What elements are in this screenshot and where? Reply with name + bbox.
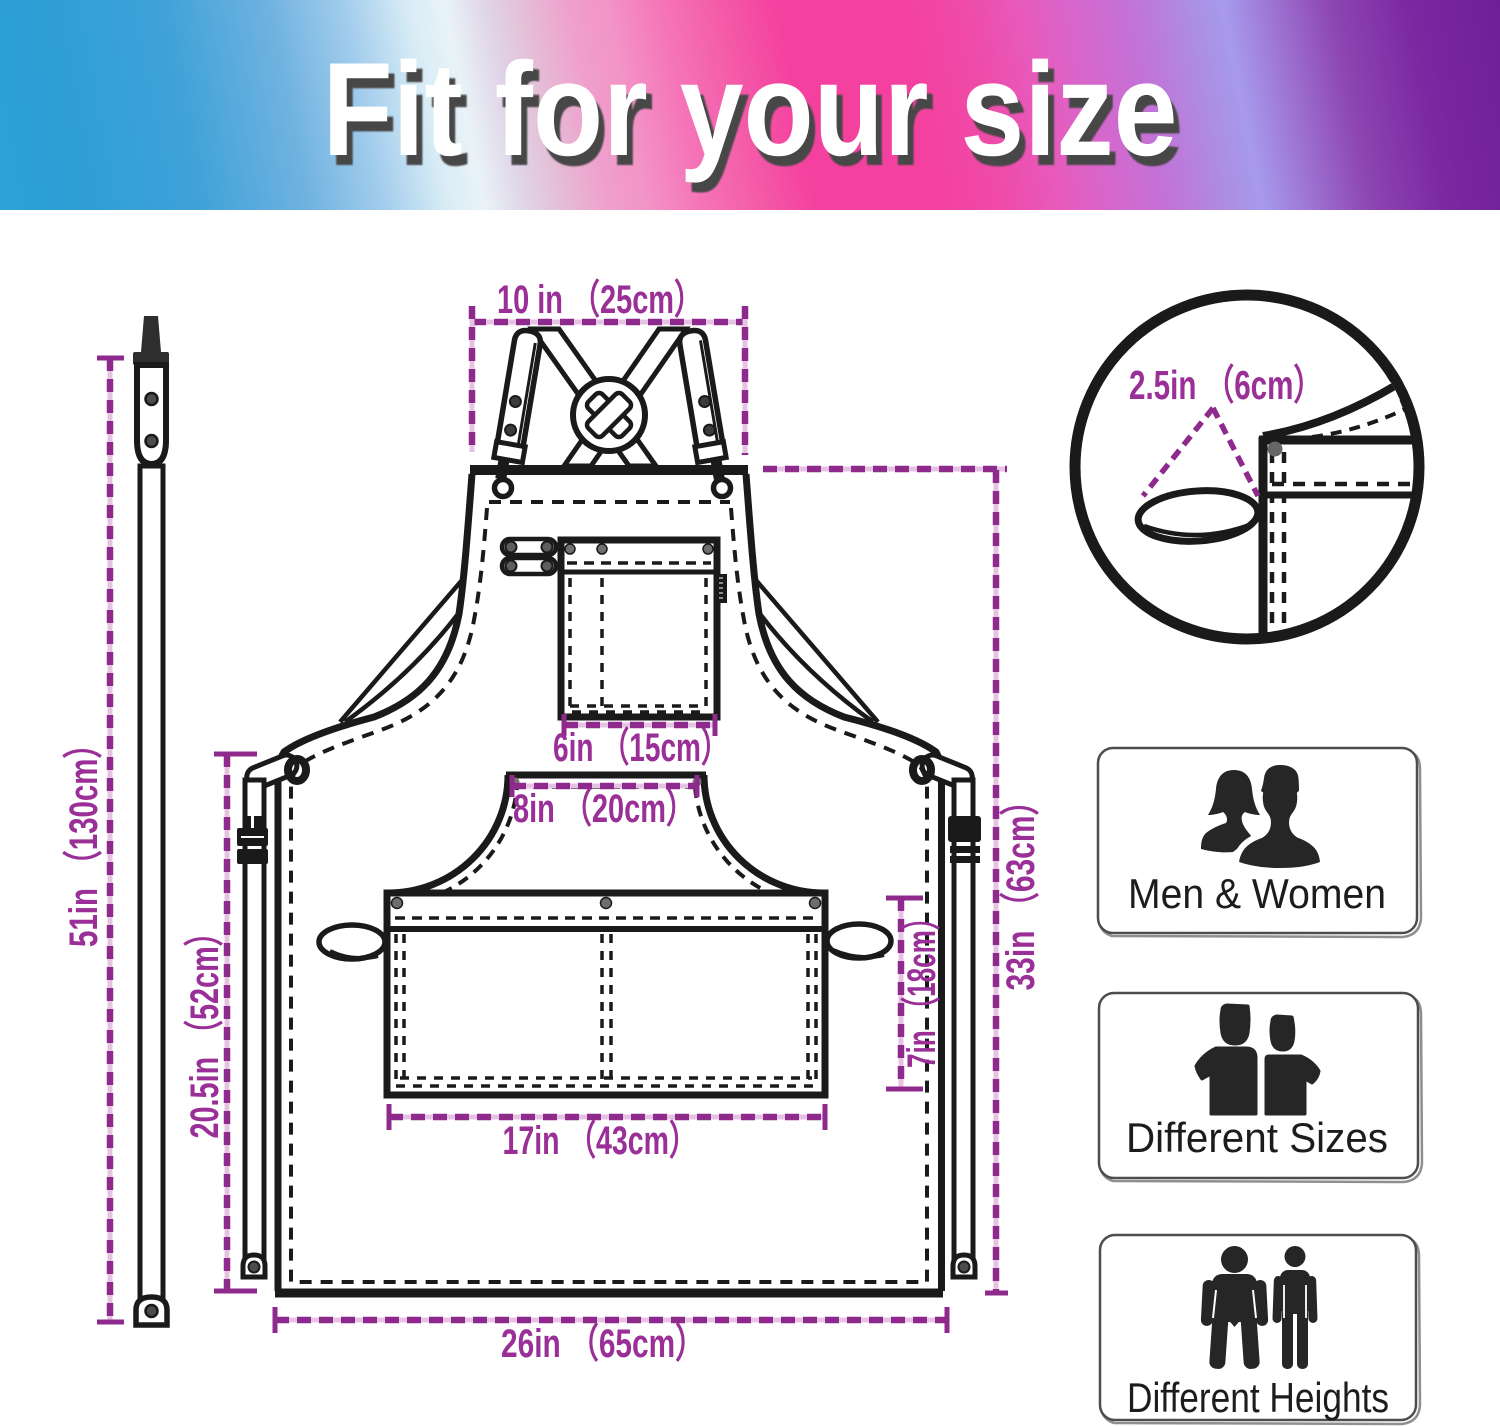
svg-text:Fit for your size: Fit for your size: [323, 36, 1178, 184]
svg-text:26in （65cm）: 26in （65cm）: [501, 1322, 705, 1366]
svg-text:7in （18cm）: 7in （18cm）: [900, 904, 944, 1068]
svg-text:20.5in （52cm）: 20.5in （52cm）: [183, 918, 227, 1139]
svg-text:2.5in （6cm）: 2.5in （6cm）: [1129, 362, 1323, 408]
svg-text:6in （15cm）: 6in （15cm）: [553, 726, 729, 770]
svg-text:17in （43cm）: 17in （43cm）: [503, 1119, 698, 1163]
svg-text:Men & Women: Men & Women: [1128, 870, 1386, 917]
svg-text:8in （20cm）: 8in （20cm）: [513, 787, 695, 831]
svg-text:33in （63cm）: 33in （63cm）: [999, 786, 1043, 991]
svg-text:51in （130cm）: 51in （130cm）: [62, 729, 106, 947]
svg-text:Different Sizes: Different Sizes: [1126, 1114, 1388, 1161]
svg-text:10 in （25cm）: 10 in （25cm）: [497, 278, 703, 322]
svg-text:Different Heights: Different Heights: [1127, 1374, 1389, 1421]
